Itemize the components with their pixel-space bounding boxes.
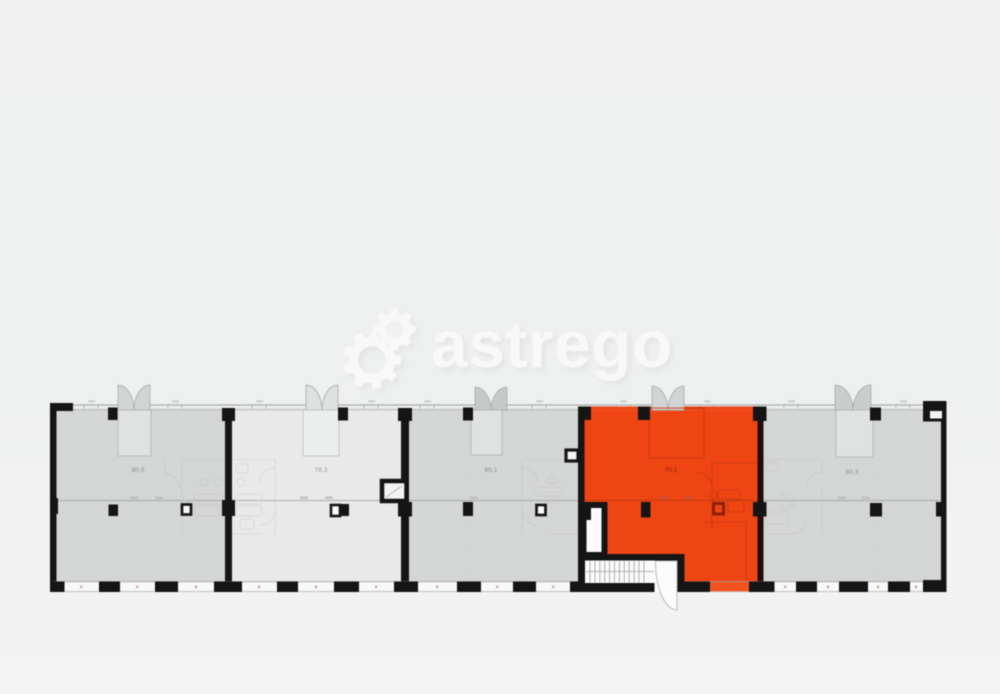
svg-text:astrego: astrego	[431, 307, 673, 381]
svg-text:78.3: 78.3	[315, 467, 328, 474]
svg-text:80.5: 80.5	[132, 467, 145, 474]
svg-text:80.3: 80.3	[846, 469, 859, 476]
svg-text:80.1: 80.1	[485, 467, 498, 474]
svg-text:70.1: 70.1	[665, 467, 678, 474]
